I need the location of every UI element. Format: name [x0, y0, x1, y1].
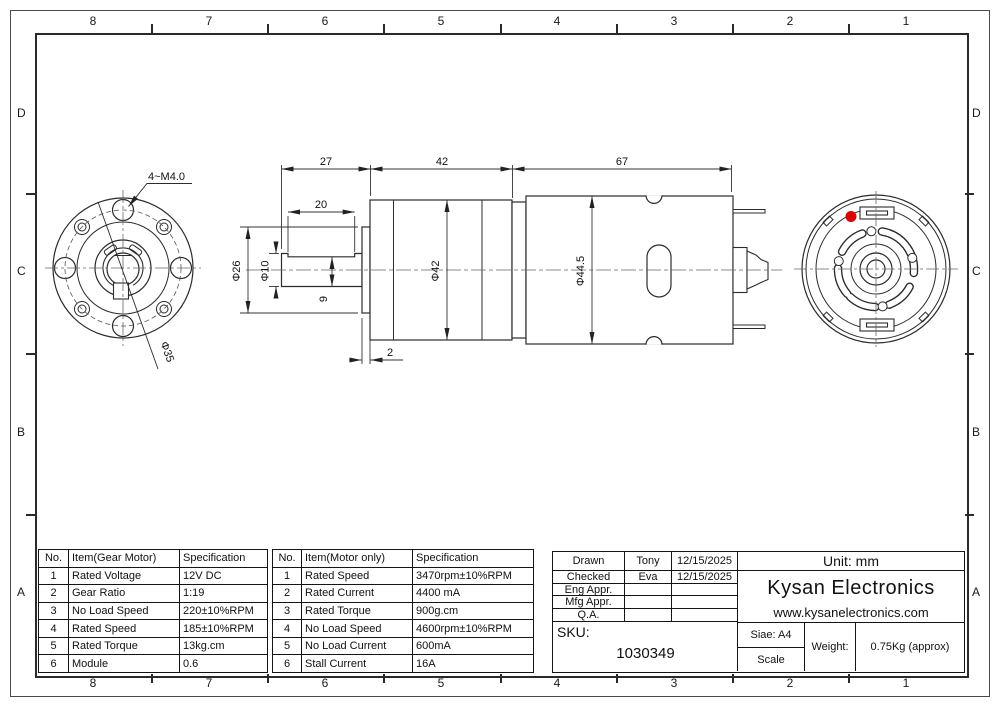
approval-name [625, 609, 672, 622]
weight-label: Weight: [805, 622, 856, 671]
scale-label: Scale [738, 647, 805, 671]
engineering-drawing-sheet: { "border": { "top": ["8","7","6","5","4… [0, 0, 1000, 707]
cell-item: Rated Current [302, 585, 413, 603]
cell-spec: 4400 mA [413, 585, 534, 603]
cell-item: Gear Ratio [69, 585, 180, 603]
approval-date: 12/15/2025 [672, 571, 738, 584]
dim-flat-length: 20 [315, 199, 327, 211]
col-header: Item(Gear Motor) [69, 550, 180, 568]
cell-spec: 220±10%RPM [180, 602, 268, 620]
cell-no: 4 [39, 620, 69, 638]
dim-shaft-dia: Φ10 [260, 260, 272, 281]
table-row: 2 Gear Ratio 1:19 [39, 585, 268, 603]
cell-no: 1 [273, 567, 302, 585]
bolt-spec-label: 4~M4.0 [148, 171, 185, 183]
approval-role: Mfg Appr. [553, 596, 625, 609]
col-header: Specification [413, 550, 534, 568]
cell-item: Rated Speed [302, 567, 413, 585]
sku-label: SKU: [553, 622, 590, 640]
rear-view [794, 191, 958, 347]
table-row: 6 Module 0.6 [39, 655, 268, 673]
dim-pilot-dia: Φ26 [231, 260, 243, 281]
cell-no: 1 [39, 567, 69, 585]
table-row: 2 Rated Current 4400 mA [273, 585, 534, 603]
weight-value: 0.75Kg (approx) [856, 622, 964, 671]
side-view [246, 195, 782, 344]
table-row: 3 Rated Torque 900g.cm [273, 602, 534, 620]
table-row: 6 Stall Current 16A [273, 655, 534, 673]
dim-plate-thickness: 2 [387, 347, 393, 359]
cell-item: No Load Speed [69, 602, 180, 620]
company-name: Kysan Electronics [738, 574, 964, 602]
cell-item: Rated Voltage [69, 567, 180, 585]
cell-spec: 4600rpm±10%RPM [413, 620, 534, 638]
cell-spec: 185±10%RPM [180, 620, 268, 638]
cell-no: 6 [273, 655, 302, 673]
col-header: No. [39, 550, 69, 568]
approval-date [672, 596, 738, 609]
company-website: www.kysanelectronics.com [738, 602, 964, 622]
unit-cell: Unit: mm [738, 552, 964, 571]
bolt-circle-callout-line [98, 202, 158, 369]
dim-gear-length: 42 [436, 156, 448, 168]
approval-name [625, 596, 672, 609]
table-row: 5 Rated Torque 13kg.cm [39, 637, 268, 655]
cell-no: 3 [39, 602, 69, 620]
motor-vent-slot [647, 245, 671, 297]
table-row: 5 No Load Current 600mA [273, 637, 534, 655]
approval-role: Drawn [553, 552, 625, 571]
col-header: Specification [180, 550, 268, 568]
table-header-row: No. Item(Gear Motor) Specification [39, 550, 268, 568]
table-row: 1 Rated Voltage 12V DC [39, 567, 268, 585]
cell-spec: 3470rpm±10%RPM [413, 567, 534, 585]
approval-date [672, 584, 738, 596]
approval-name [625, 584, 672, 596]
table-row: 3 No Load Speed 220±10%RPM [39, 602, 268, 620]
table-header-row: No. Item(Motor only) Specification [273, 550, 534, 568]
cell-spec: 13kg.cm [180, 637, 268, 655]
bolt-circle-dia-label: Φ35 [158, 340, 176, 364]
dim-shaft-length: 27 [320, 156, 332, 168]
terminal-pin-top [733, 210, 765, 214]
cell-item: No Load Speed [302, 620, 413, 638]
table-row: 4 Rated Speed 185±10%RPM [39, 620, 268, 638]
approval-role: Q.A. [553, 609, 625, 622]
title-block: Drawn Tony 12/15/2025 Checked Eva 12/15/… [552, 551, 965, 673]
motor-only-spec-table: No. Item(Motor only) Specification 1 Rat… [272, 549, 534, 673]
dim-motor-dia: Φ44.5 [575, 256, 587, 286]
sheet-size: Siae: A4 [738, 622, 805, 647]
cell-item: Rated Torque [69, 637, 180, 655]
cell-no: 4 [273, 620, 302, 638]
cell-item: Rated Speed [69, 620, 180, 638]
cell-no: 3 [273, 602, 302, 620]
sku-number: 1030349 [553, 641, 738, 665]
cell-spec: 1:19 [180, 585, 268, 603]
approval-date: 12/15/2025 [672, 552, 738, 571]
cell-no: 2 [39, 585, 69, 603]
cell-spec: 16A [413, 655, 534, 673]
polarity-marker-dot [846, 211, 857, 222]
cell-item: No Load Current [302, 637, 413, 655]
dim-motor-length: 67 [616, 156, 628, 168]
approval-date [672, 609, 738, 622]
cell-item: Stall Current [302, 655, 413, 673]
table-row: 4 No Load Speed 4600rpm±10%RPM [273, 620, 534, 638]
gear-motor-spec-table: No. Item(Gear Motor) Specification 1 Rat… [38, 549, 268, 673]
rear-centerlines [794, 191, 958, 347]
front-centerlines [45, 190, 201, 346]
cell-no: 5 [39, 637, 69, 655]
cell-no: 2 [273, 585, 302, 603]
cell-item: Module [69, 655, 180, 673]
cell-no: 5 [273, 637, 302, 655]
cell-spec: 0.6 [180, 655, 268, 673]
terminal-pin-bottom [733, 325, 765, 329]
cell-spec: 900g.cm [413, 602, 534, 620]
col-header: Item(Motor only) [302, 550, 413, 568]
dim-gear-dia: Φ42 [430, 260, 442, 281]
cell-spec: 600mA [413, 637, 534, 655]
col-header: No. [273, 550, 302, 568]
front-view [45, 184, 201, 370]
front-keyway-notch [114, 283, 129, 299]
approval-name: Eva [625, 571, 672, 584]
approval-name: Tony [625, 552, 672, 571]
cell-item: Rated Torque [302, 602, 413, 620]
cell-spec: 12V DC [180, 567, 268, 585]
dim-flat-drop: 9 [318, 296, 330, 302]
bolt-spec-leader [129, 184, 193, 207]
approval-role: Checked [553, 571, 625, 584]
cell-no: 6 [39, 655, 69, 673]
approval-role: Eng Appr. [553, 584, 625, 596]
table-row: 1 Rated Speed 3470rpm±10%RPM [273, 567, 534, 585]
